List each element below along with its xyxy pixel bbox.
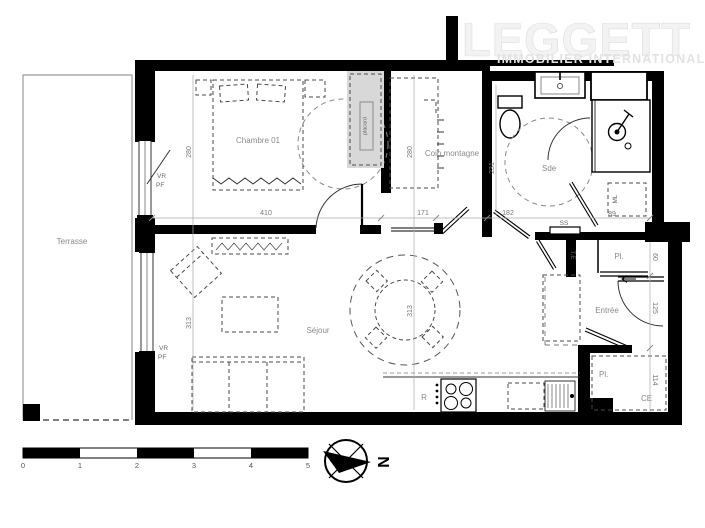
scale-seg-3 [137, 448, 194, 458]
coin-montagne-label: Coin montagne [425, 149, 480, 158]
chambre-door-arc [316, 184, 362, 228]
scale-tick-3: 3 [192, 461, 196, 470]
towel-rail-label: SS [560, 220, 569, 227]
scale-tick-4: 4 [249, 461, 253, 470]
scale-bar: 0 1 2 3 4 5 [21, 448, 310, 470]
electrical-panel-label: T.E [569, 250, 576, 260]
bed [213, 80, 303, 190]
nightstand-left [196, 80, 211, 95]
shower-door-arc [548, 118, 590, 160]
bunk-bed-corner [424, 100, 436, 114]
front-door [618, 276, 664, 327]
sde-label: Sde [542, 164, 557, 173]
dim-sde-height: 231 [489, 162, 496, 174]
dim-entree-height: 125 [651, 302, 658, 314]
wall-left-c [135, 352, 155, 414]
te-door-leaf [537, 240, 557, 270]
placard-top-label: Pl. [614, 252, 623, 261]
chambre-window-vr-label: VR [157, 173, 166, 180]
dim-sejour-height-left: 313 [186, 317, 193, 329]
scale-tick-0: 0 [21, 461, 25, 470]
kitchen: R [383, 373, 580, 412]
dining-table [375, 280, 435, 340]
scale-tick-2: 2 [135, 461, 139, 470]
sejour-window-vr-label: VR [159, 345, 168, 352]
logo-bar-vertical [446, 16, 458, 64]
placard-bottom-label: Pl. [599, 370, 608, 379]
dim-sde-width: 182 [502, 210, 514, 217]
wall-coin-post [434, 223, 443, 234]
armchair [171, 247, 222, 298]
scale-tick-1: 1 [78, 461, 82, 470]
dining-turning-circle [350, 255, 460, 365]
wall-right-upper [652, 71, 664, 228]
dining-set [350, 255, 460, 365]
sofa [192, 357, 304, 412]
scale-seg-1 [23, 448, 80, 458]
coffee-table [222, 297, 278, 332]
sideboard-hatch [216, 243, 282, 250]
dim-chambre-height: 280 [186, 146, 193, 158]
wall-chambre-hinge [360, 225, 381, 234]
pillow-right [256, 84, 285, 102]
washing-machine-label: ML [612, 194, 619, 203]
bed-blanket-line [213, 178, 301, 184]
scale-seg-5 [251, 448, 308, 458]
wall-coin-sde [482, 71, 492, 237]
sde-turning-circle [505, 118, 593, 206]
chair-ne [421, 271, 442, 292]
shower-niche [591, 72, 647, 100]
windows: VR PF VR PF [137, 136, 170, 361]
floorplan-page: LEGGETT IMMOBILIER INTERNATIONAL Terrass… [0, 0, 705, 528]
north-letter: N [374, 456, 391, 468]
sejour-window-cap-bottom [139, 351, 155, 356]
shower-stall [592, 100, 650, 172]
coin-door-leaf [441, 207, 469, 234]
chair-se [422, 326, 443, 347]
coin-montagne-room: Coin montagne [390, 78, 480, 188]
dim-coin-height: 280 [407, 146, 414, 158]
sejour-window: VR PF [139, 248, 168, 361]
chambre-label: Chambre 01 [236, 136, 281, 145]
chambre-window: VR PF [137, 136, 170, 220]
entree-cabinet [543, 275, 580, 341]
dim-placard-top-height: 60 [651, 253, 658, 261]
wall-left-b [135, 218, 155, 252]
terrasse-outline [23, 75, 132, 420]
wall-top-main [135, 60, 490, 71]
north-compass-icon: N [323, 440, 391, 482]
dim-ml-width: 89 [608, 211, 616, 218]
chambre-room: placard Chambre 01 [196, 71, 388, 190]
sejour-room: Séjour R [171, 238, 580, 412]
wall-entry-jut [645, 222, 690, 242]
sejour-window-cap-top [139, 248, 155, 253]
dim-placard-bottom-height: 114 [651, 374, 658, 385]
toilet-bowl [500, 110, 520, 138]
wall-left-a [135, 60, 155, 142]
pillow-left [219, 84, 248, 102]
water-heater-label: CE [641, 394, 652, 403]
sideboard [212, 238, 288, 254]
chambre-window-pf-label: PF [156, 182, 164, 189]
scale-tick-5: 5 [306, 461, 310, 470]
wall-placard-bottom-top [578, 345, 632, 353]
north-needle [323, 451, 371, 473]
wall-chambre-bottom [152, 225, 316, 234]
floorplan-drawing: LEGGETT IMMOBILIER INTERNATIONAL Terrass… [0, 0, 705, 528]
leggett-logo: LEGGETT IMMOBILIER INTERNATIONAL [446, 13, 705, 66]
sejour-window-pf-label: PF [158, 354, 166, 361]
entree-label: Entrée [595, 306, 619, 315]
kitchen-sink [545, 381, 575, 411]
dim-coin-width: 171 [417, 210, 429, 217]
wall-right-lower [668, 242, 682, 418]
terrasse-area: Terrasse [23, 75, 132, 421]
toilet-tank [498, 96, 522, 108]
terrasse-label: Terrasse [57, 237, 88, 246]
dishwasher [508, 383, 544, 409]
chair-nw [366, 270, 387, 291]
sejour-label: Séjour [306, 326, 329, 335]
nightstand-right [305, 80, 325, 97]
towel-rail [550, 227, 580, 234]
dim-sejour-height-mid: 313 [407, 305, 414, 317]
wall-ce-block [583, 398, 613, 415]
fridge-label: R [421, 393, 427, 402]
chambre-window-cap-top [137, 136, 153, 141]
dim-chambre-width: 410 [260, 210, 272, 217]
closet-strip-label: placard [363, 117, 369, 135]
terrasse-pillar [23, 404, 40, 421]
logo-tagline-text: IMMOBILIER INTERNATIONAL [497, 52, 705, 66]
doors [316, 182, 630, 350]
